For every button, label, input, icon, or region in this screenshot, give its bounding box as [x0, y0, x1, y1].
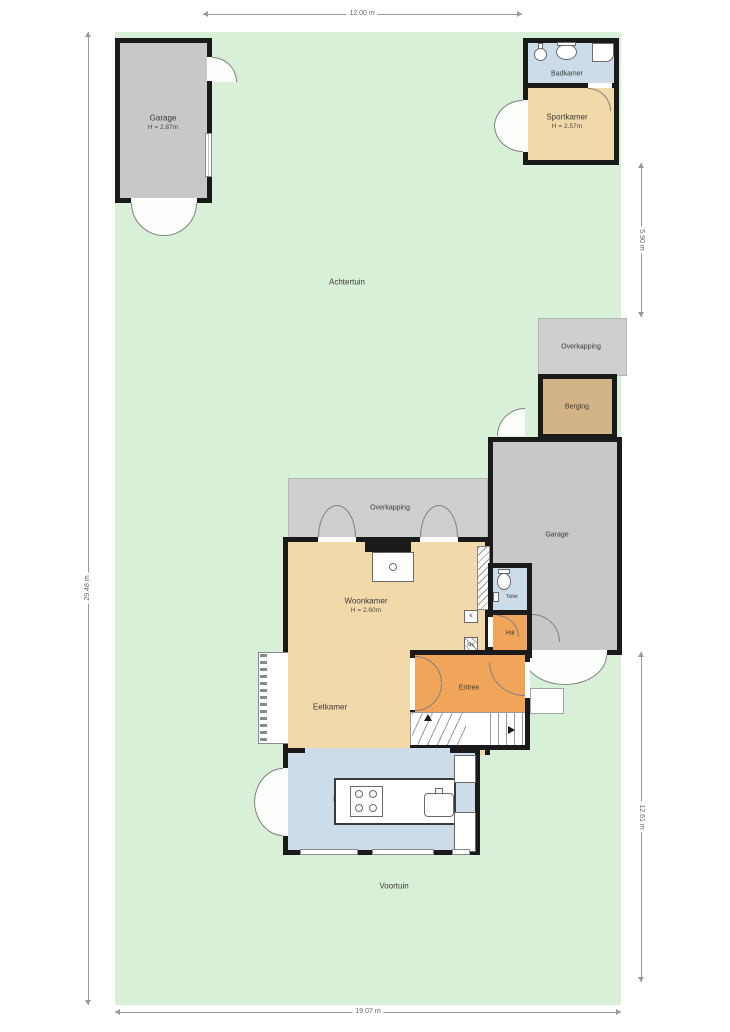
sportkamer-label: Sportkamer	[546, 113, 587, 122]
dim-arrow-ru-bottom	[638, 312, 644, 317]
woonkamer-canopy-door-gap-right	[420, 537, 458, 542]
toilet-fixture-icon	[534, 48, 547, 61]
keuken-window-2	[372, 849, 434, 855]
dim-arrow-top-right	[517, 11, 522, 17]
toilet-label: Toilet	[506, 595, 518, 600]
kast-label: K	[469, 615, 472, 620]
dim-label-bottom: 19.07 m	[352, 1008, 383, 1016]
woonkamer-label: Woonkamer	[345, 597, 388, 606]
keuken-door-gap	[283, 768, 288, 836]
dim-arrow-ru-top	[638, 163, 644, 168]
dim-arrow-left-bottom	[85, 1000, 91, 1005]
dim-arrow-rl-bottom	[638, 977, 644, 982]
wc-fixture-icon	[497, 573, 511, 590]
garage-detached-height: H = 2.87m	[148, 124, 178, 132]
dim-arrow-bottom-right	[616, 1009, 621, 1015]
garage-detached-window	[205, 133, 212, 177]
floor-plan: Achtertuin Voortuin Garage H = 2.87m Bad…	[0, 0, 730, 1032]
stairs-arrow-up-icon	[424, 714, 432, 721]
wc-sink-icon	[493, 592, 499, 602]
hob-burner-3	[355, 804, 363, 812]
wood-stove-burner-icon	[389, 563, 397, 571]
sink-back-icon	[557, 42, 576, 46]
meterkast-label: MK	[467, 644, 475, 649]
folding-door-icon	[260, 654, 267, 742]
hal-garage-door-gap	[488, 617, 493, 647]
dim-label-top: 12.00 m	[346, 10, 377, 18]
keuken-window-3	[452, 849, 470, 855]
sink-tap-icon	[435, 788, 443, 794]
garage-detached-label: Garage	[150, 114, 177, 123]
dim-label-right-lower: 12.61 m	[637, 801, 645, 832]
dim-arrow-left-top	[85, 32, 91, 37]
garage-attached-label: Garage	[545, 531, 568, 540]
overkapping-north-label: Overkapping	[370, 504, 410, 513]
wc-tank-icon	[498, 569, 510, 574]
sportkamer-door-gap	[523, 100, 528, 152]
dim-label-left: 29.48 m	[84, 572, 92, 603]
berging-label: Berging	[565, 403, 589, 412]
hob-burner-2	[369, 790, 377, 798]
eetkamer-label: Eetkamer	[313, 703, 347, 712]
hob-burner-4	[369, 804, 377, 812]
kitchen-counter-bottom	[454, 812, 476, 852]
woonkamer-height: H = 2.60m	[351, 607, 381, 615]
stairs-east-wall	[525, 712, 530, 750]
back-garden-label: Achtertuin	[329, 278, 365, 287]
keuken-window-1	[300, 849, 358, 855]
stove-chimney	[365, 540, 411, 552]
toilet-tank-icon	[538, 43, 543, 49]
keuken-top-wall-right	[450, 748, 480, 753]
badkamer-door-gap	[588, 83, 612, 88]
sink-fixture-icon	[556, 44, 577, 60]
entree-label: Entree	[459, 684, 480, 693]
shower-fixture-icon	[592, 43, 614, 62]
room-toilet	[488, 563, 532, 615]
dim-label-right-upper: 5.90 m	[637, 226, 645, 253]
front-step	[530, 688, 564, 714]
dim-arrow-rl-top	[638, 652, 644, 657]
hob-burner-1	[355, 790, 363, 798]
dim-line-left	[88, 32, 89, 1005]
sink-icon	[424, 793, 454, 817]
woonkamer-canopy-door-gap-left	[318, 537, 356, 542]
overkapping-east-label: Overkapping	[561, 343, 601, 352]
front-garden-label: Voortuin	[379, 882, 408, 891]
kitchen-counter-top	[454, 755, 476, 783]
dim-arrow-bottom-left	[115, 1009, 120, 1015]
stairs-arrow-right-icon	[508, 726, 515, 734]
sportkamer-height: H = 2.57m	[552, 123, 582, 131]
dim-arrow-top-left	[203, 11, 208, 17]
stairs-flight-left	[412, 713, 466, 749]
keuken-top-wall-left	[283, 748, 305, 753]
badkamer-label: Badkamer	[551, 70, 583, 79]
